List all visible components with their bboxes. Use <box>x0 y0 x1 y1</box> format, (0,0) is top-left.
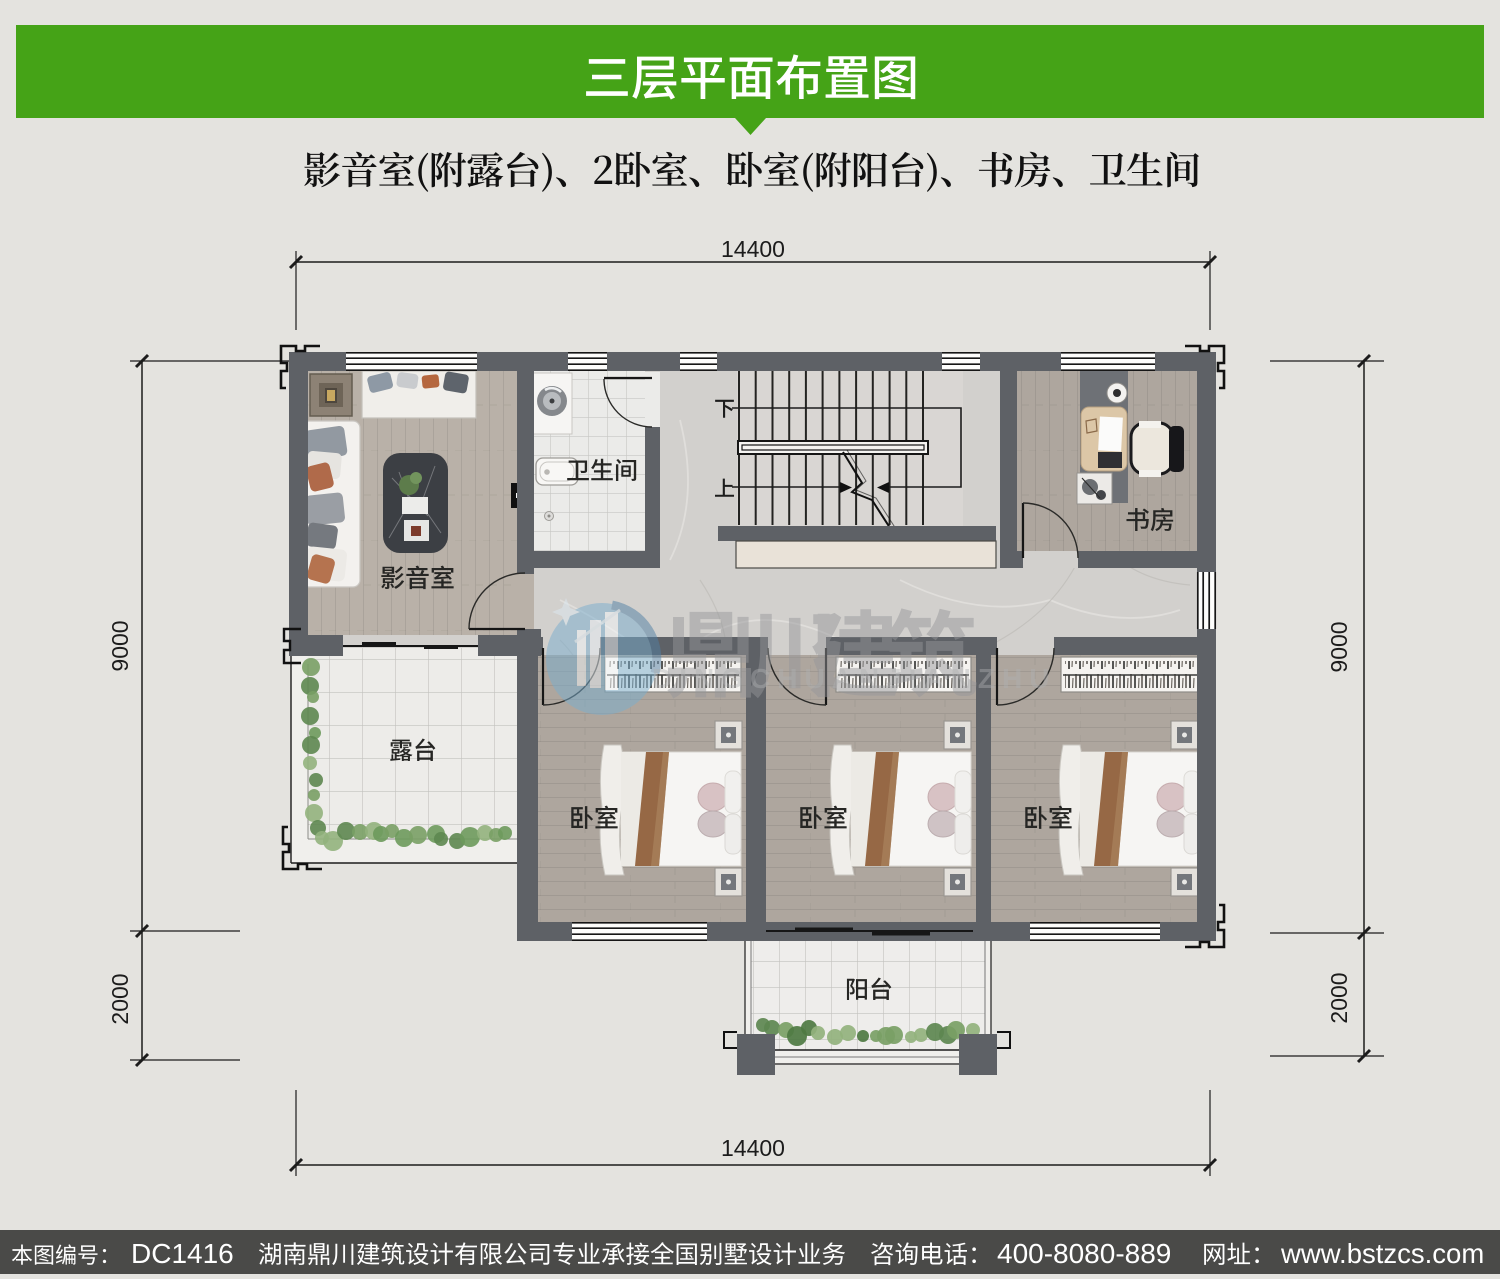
svg-text:www.bstzcs.com: www.bstzcs.com <box>1280 1238 1484 1269</box>
svg-text:400-8080-889: 400-8080-889 <box>997 1238 1171 1269</box>
svg-text:14400: 14400 <box>721 1135 785 1161</box>
svg-text:9000: 9000 <box>1326 621 1352 672</box>
svg-text:2000: 2000 <box>107 973 133 1024</box>
svg-text:DINGCHUANJIANZHU: DINGCHUANJIANZHU <box>652 663 1056 694</box>
svg-text:DC1416: DC1416 <box>131 1238 234 1269</box>
svg-text:14400: 14400 <box>721 236 785 262</box>
svg-text:2000: 2000 <box>1326 972 1352 1023</box>
svg-text:9000: 9000 <box>107 620 133 671</box>
